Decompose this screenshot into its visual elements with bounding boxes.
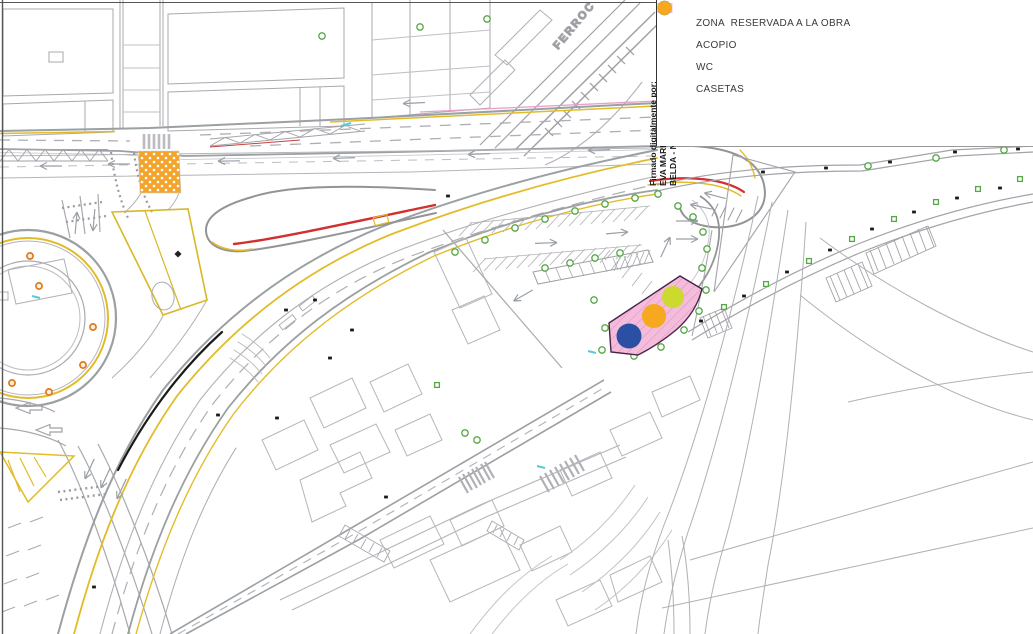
roundabout-orange-dots [9,253,96,395]
legend-item-wc: WC [696,56,1033,78]
legend: ZONA RESERVADA A LA OBRA ACOPIO WC CASET… [657,0,1033,146]
railway-label: FERROC [551,0,598,52]
triangle-island [112,209,207,315]
posts [92,148,1020,589]
bottom-street [170,380,626,634]
legend-label: CASETAS [696,84,744,95]
legend-label: WC [696,62,713,73]
railway: FERROC [480,0,663,165]
buildings-south [262,238,700,634]
roundabout [0,194,207,634]
zone-wc-marker [662,286,684,308]
legend-item-acopio: ACOPIO [696,34,1033,56]
construction-zone [609,276,702,355]
legend-item-casetas: CASETAS [696,78,1033,100]
lane-arrows [16,99,727,500]
legend-label: ZONA RESERVADA A LA OBRA [696,18,850,29]
slope-contours [636,196,1033,634]
stairs [700,226,936,338]
casetas-swatch [657,0,673,16]
crosswalk-orange [138,151,181,193]
zone-casetas-marker [642,304,666,328]
avenue [58,146,765,634]
site-plan-screenshot: FERROC [0,0,1033,634]
legend-item-zona-obra: ZONA RESERVADA A LA OBRA [696,12,1033,34]
legend-label: ACOPIO [696,40,737,51]
zone-acopio-marker [617,324,642,349]
